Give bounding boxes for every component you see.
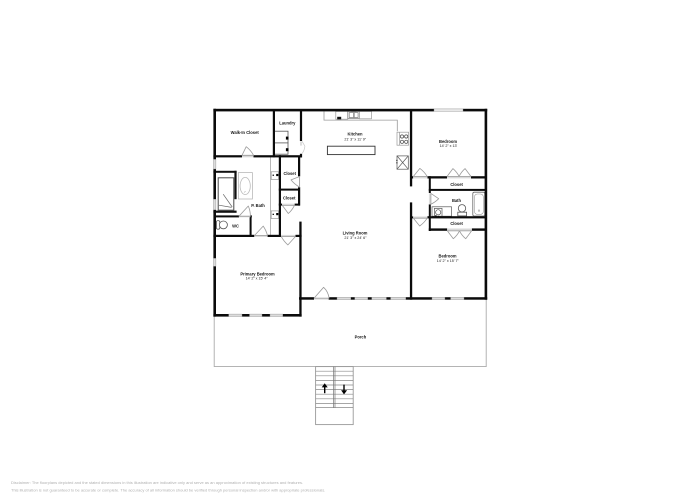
svg-text:Bath: Bath: [452, 198, 462, 203]
svg-text:Closet: Closet: [450, 182, 463, 187]
svg-text:14' 2" x 13': 14' 2" x 13': [440, 144, 458, 148]
svg-text:WC: WC: [232, 223, 239, 228]
svg-text:Walk-In Closet: Walk-In Closet: [231, 130, 260, 135]
svg-text:21' 3" x 11' 9": 21' 3" x 11' 9": [344, 137, 366, 141]
svg-text:Porch: Porch: [355, 334, 367, 339]
svg-text:Primary Bedroom: Primary Bedroom: [240, 271, 275, 276]
svg-text:21' 3" x 24' 6": 21' 3" x 24' 6": [344, 236, 367, 240]
svg-text:Bedroom: Bedroom: [439, 253, 457, 258]
svg-text:Closet: Closet: [283, 171, 296, 176]
svg-text:Closet: Closet: [283, 195, 296, 200]
svg-text:Disclaimer: The floorplans dep: Disclaimer: The floorplans depicted and …: [11, 480, 303, 485]
svg-text:14' 2" x 15' 7": 14' 2" x 15' 7": [437, 259, 460, 263]
svg-text:Laundry: Laundry: [279, 121, 296, 126]
svg-text:Living Room: Living Room: [343, 231, 368, 236]
svg-text:Closet: Closet: [450, 221, 463, 226]
svg-text:14' 2" x 15' 4": 14' 2" x 15' 4": [246, 277, 269, 281]
svg-text:This illustration is not guara: This illustration is not guaranteed to b…: [11, 487, 325, 492]
svg-text:Kitchen: Kitchen: [347, 132, 363, 137]
svg-text:P. Bath: P. Bath: [251, 203, 265, 208]
